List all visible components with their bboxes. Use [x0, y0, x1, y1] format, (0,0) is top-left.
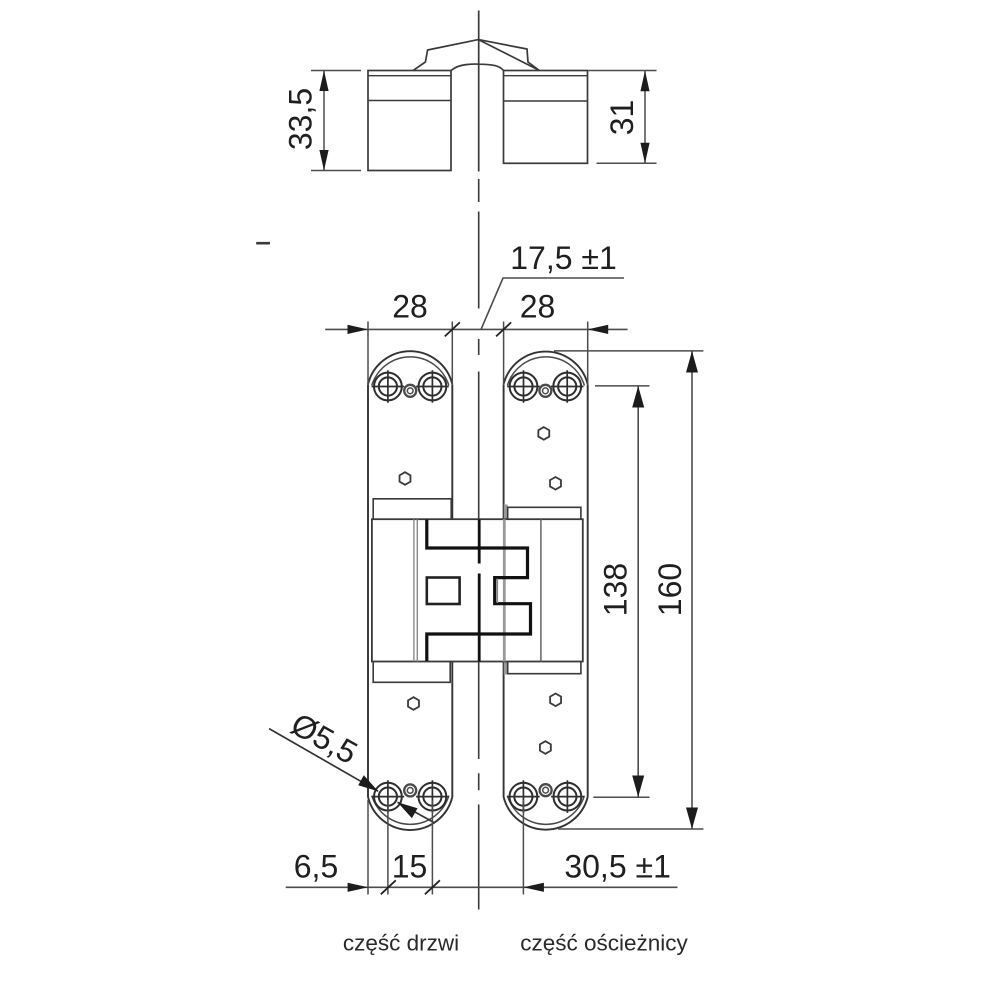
svg-text:część drzwi: część drzwi: [343, 931, 459, 956]
svg-text:138: 138: [598, 563, 634, 616]
svg-text:17,5 ±1: 17,5 ±1: [510, 240, 617, 276]
svg-text:28: 28: [520, 289, 556, 325]
svg-text:33,5: 33,5: [283, 88, 319, 150]
svg-text:160: 160: [652, 563, 688, 616]
svg-text:6,5: 6,5: [294, 849, 338, 885]
svg-text:28: 28: [392, 289, 428, 325]
svg-text:30,5 ±1: 30,5 ±1: [564, 849, 671, 885]
svg-text:31: 31: [604, 100, 640, 136]
svg-text:część ościeżnicy: część ościeżnicy: [520, 931, 688, 956]
svg-text:15: 15: [392, 849, 428, 885]
